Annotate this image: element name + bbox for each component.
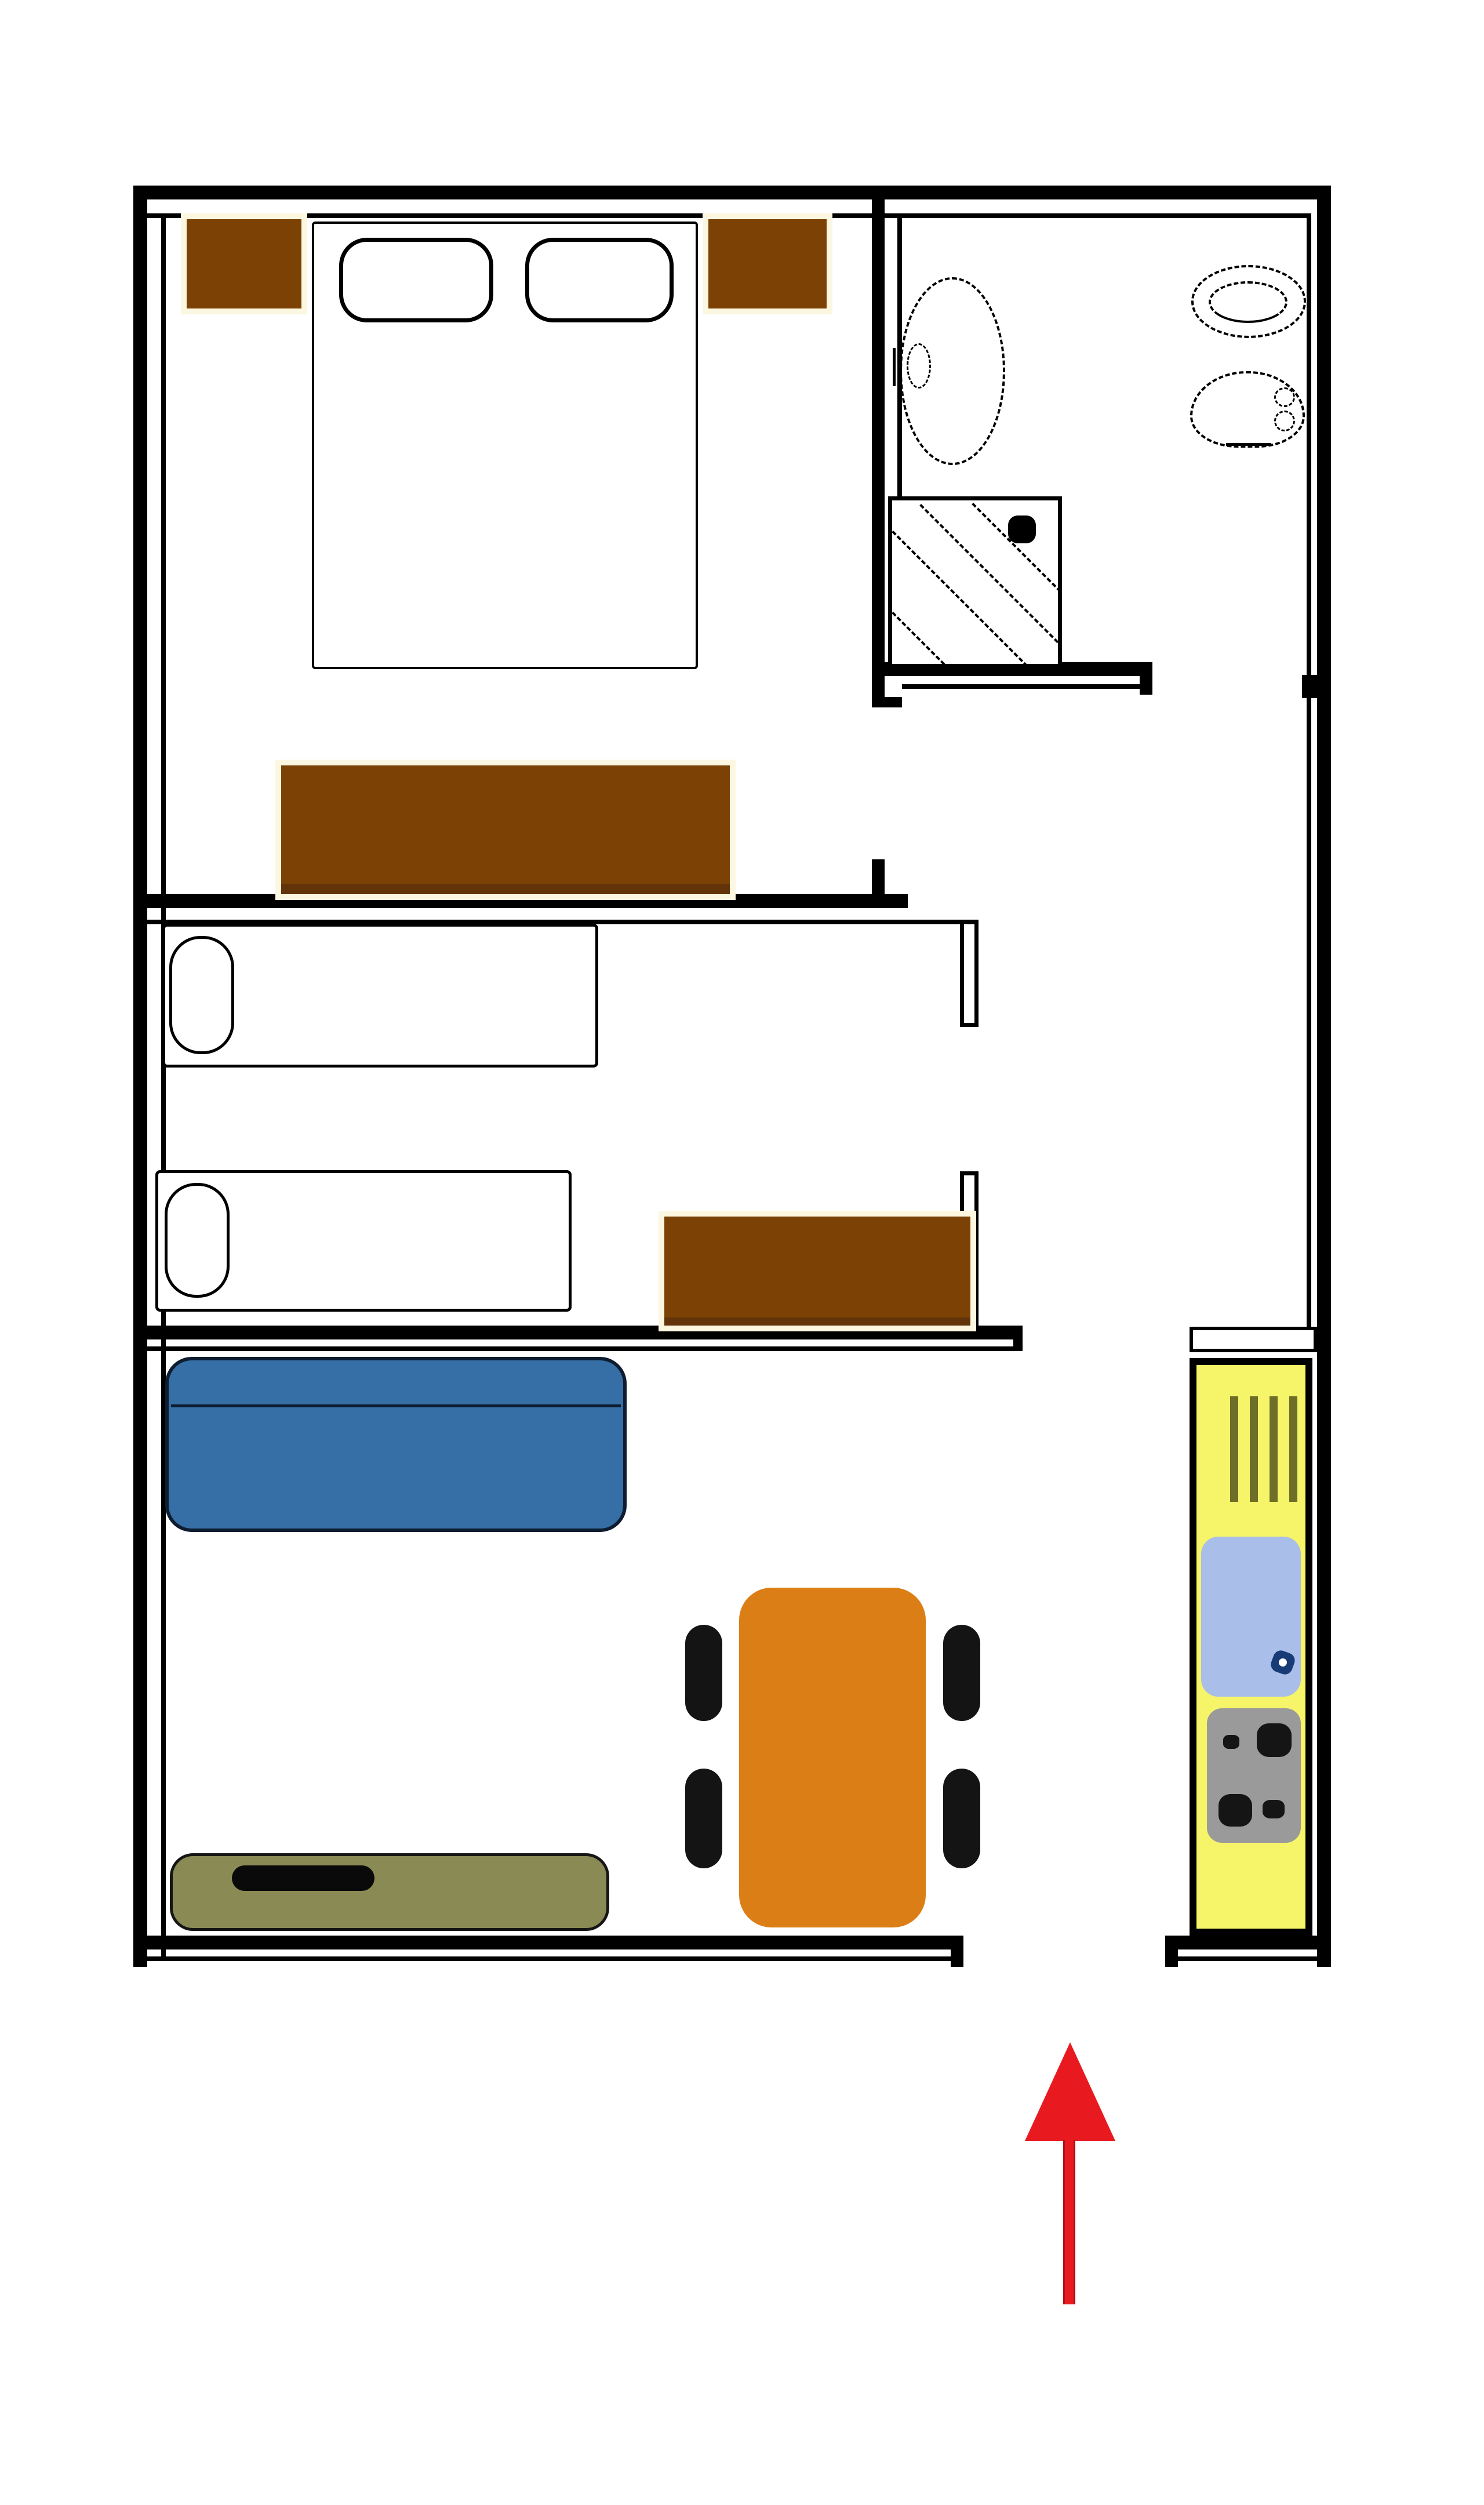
bidet-base-line	[1226, 443, 1271, 446]
dish-rack-bar	[1270, 1396, 1278, 1502]
tap-icon-center	[1278, 1657, 1288, 1668]
wall-right-inner-line	[1307, 213, 1311, 1351]
bidet-control-2	[1274, 411, 1295, 431]
single-bed-1-pillow	[169, 936, 234, 1054]
divider-bed-bath	[872, 199, 885, 707]
wall-left-inner-line	[161, 213, 166, 1961]
arrow-head	[1025, 2042, 1115, 2141]
kitchen-top-wall-stub	[1190, 1327, 1317, 1352]
wall-top-inner-line	[147, 213, 1307, 218]
nightstand-right	[708, 219, 827, 308]
corridor-wall-lower-right-line	[974, 1171, 979, 1326]
single-bed-2-pillow	[165, 1183, 230, 1298]
sofa	[165, 1357, 627, 1532]
bathroom-door-jamb	[1140, 662, 1152, 695]
corridor-wall-upper-cap	[960, 1023, 979, 1027]
burner-large-top-right	[1257, 1723, 1292, 1757]
corridor-wall-lower-cap	[960, 1171, 979, 1175]
right-wall-door-jamb	[1302, 675, 1318, 698]
floor-plan	[0, 0, 1484, 2505]
arrow-shaft	[1063, 2140, 1075, 2304]
pillow-left	[339, 238, 493, 322]
low-bench	[170, 1853, 609, 1931]
side-chest	[664, 1217, 970, 1326]
bidet-control-1	[1274, 387, 1295, 407]
wall-bottom-left-jamb	[951, 1936, 963, 1967]
bench-object	[232, 1865, 374, 1891]
shower	[888, 496, 1062, 668]
wall-bottom-left	[133, 1936, 963, 1949]
stove	[1207, 1708, 1301, 1843]
sofa-backrest-line	[171, 1404, 621, 1407]
chair-bottom-left	[685, 1769, 722, 1868]
divider-bed-bath-end-cap	[872, 697, 902, 707]
tap-icon	[1269, 1649, 1297, 1677]
wall-twinroom-living	[147, 1326, 1013, 1339]
floor-plan-page: { "plan": { "type": "apartment-floor-pla…	[0, 0, 1484, 2505]
shower-head-dot	[1008, 515, 1036, 543]
bathroom-bottom-wall-inner-line	[902, 684, 1152, 689]
chair-bottom-right	[943, 1769, 980, 1868]
dish-rack-bar	[1250, 1396, 1258, 1502]
wall-bottom-right	[1165, 1936, 1331, 1949]
wall-bottom-right-inner-line	[1170, 1956, 1317, 1961]
kitchen-unit	[1190, 1358, 1312, 1936]
bidet	[1190, 371, 1305, 448]
wall-bottom-right-jamb	[1165, 1936, 1178, 1967]
wall-twinroom-living-end-cap	[1013, 1326, 1023, 1351]
wall-bedroom-twinroom-jamb	[872, 859, 885, 894]
wall-left	[133, 186, 147, 1967]
pillow-right	[525, 238, 674, 322]
dining-table	[739, 1588, 926, 1927]
wall-right	[1317, 186, 1331, 1967]
dish-rack-bar	[1230, 1396, 1238, 1502]
corridor-wall-upper-left-line	[960, 922, 964, 1026]
wall-twinroom-living-inner-line	[147, 1346, 1023, 1351]
nightstand-left	[187, 219, 301, 308]
dish-rack-bar	[1289, 1396, 1297, 1502]
wall-bedroom-twinroom	[147, 894, 908, 908]
faucet-oval	[907, 343, 931, 389]
chair-top-left	[685, 1625, 722, 1721]
toilet-inner-bowl	[1209, 281, 1287, 323]
burner-small-bottom-right	[1263, 1800, 1285, 1818]
corridor-wall-upper-right-line	[974, 922, 979, 1026]
kitchen-sink	[1201, 1537, 1301, 1697]
wall-top	[133, 186, 1331, 199]
faucet-mark	[893, 348, 896, 386]
dresser	[281, 765, 730, 894]
chair-top-right	[943, 1625, 980, 1721]
burner-large-bottom-left	[1219, 1794, 1252, 1827]
burner-small-top-left	[1223, 1735, 1239, 1749]
wall-bottom-left-inner-line	[147, 1956, 960, 1961]
